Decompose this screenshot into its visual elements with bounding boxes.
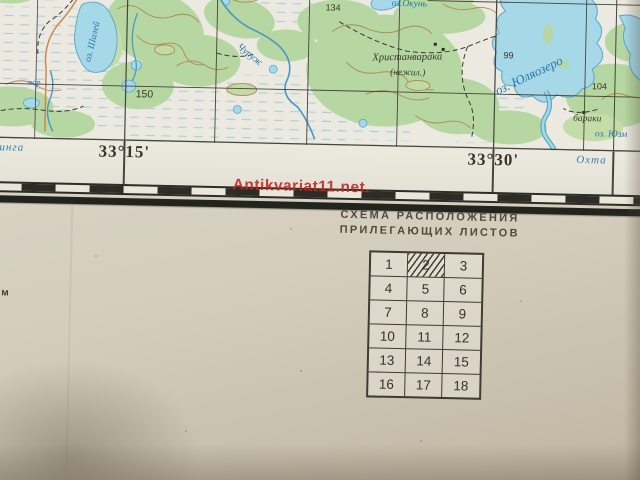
label-elevation-104: 104: [592, 81, 607, 91]
index-cell-5: 5: [407, 277, 445, 302]
label-settlement-note: (нежил.): [390, 67, 425, 79]
index-diagram-table: 1 2 3 4 5 6 7 8 9 10 11 12 13 14 15 16 1…: [366, 250, 484, 399]
label-settlement: Христанварака: [371, 51, 442, 63]
label-lake-yuzm: оз. Юзм: [595, 129, 628, 140]
index-cell-9: 9: [444, 302, 482, 327]
photo-edge-shadow-right: [624, 0, 640, 480]
index-cell-16: 16: [368, 372, 405, 396]
index-cell-2-current: 2: [408, 253, 446, 278]
longitude-label-east: 33°30': [448, 149, 538, 171]
index-cell-8: 8: [407, 301, 445, 326]
index-cell-18: 18: [442, 374, 479, 398]
label-elevation-134: 134: [325, 2, 340, 12]
meridian-tick: [612, 152, 614, 195]
index-diagram-title: СХЕМА РАСПОЛОЖЕНИЯ ПРИЛЕГАЮЩИХ ЛИСТОВ: [323, 207, 538, 241]
label-rapids: пор: [28, 77, 41, 87]
longitude-label-west: 33°15': [79, 141, 169, 163]
index-cell-14: 14: [406, 349, 444, 374]
label-barracks: бараки: [573, 113, 602, 125]
label-depth-99: 99: [503, 50, 513, 60]
map-photo: ежье 134 150 99 104 оз. Шалей оз.Окунь о…: [0, 0, 640, 480]
paper-specks: [300, 370, 302, 372]
label-lake-okun: оз.Окунь: [392, 0, 428, 10]
index-cell-4: 4: [370, 276, 408, 301]
index-cell-17: 17: [405, 373, 442, 397]
photo-corner-shadow: [0, 360, 200, 480]
index-cell-13: 13: [369, 348, 407, 373]
dealer-watermark: Antikvariat11.net.: [232, 176, 370, 197]
margin-river-label-left: Шоинга: [0, 141, 24, 154]
label-fragment-topleft: ежье: [0, 0, 15, 3]
margin-river-label-right: Охта: [576, 154, 607, 167]
scale-units-note: км: [0, 287, 10, 298]
index-cell-1: 1: [371, 252, 409, 277]
index-cell-12: 12: [443, 326, 481, 351]
index-cell-10: 10: [369, 324, 407, 349]
index-cell-15: 15: [443, 350, 481, 375]
index-cell-3: 3: [445, 254, 483, 279]
label-elevation-150: 150: [135, 88, 153, 100]
index-cell-7: 7: [370, 300, 408, 325]
map-face: ежье 134 150 99 104 оз. Шалей оз.Окунь о…: [0, 0, 640, 153]
index-cell-6: 6: [444, 278, 482, 303]
index-cell-11: 11: [406, 325, 444, 350]
